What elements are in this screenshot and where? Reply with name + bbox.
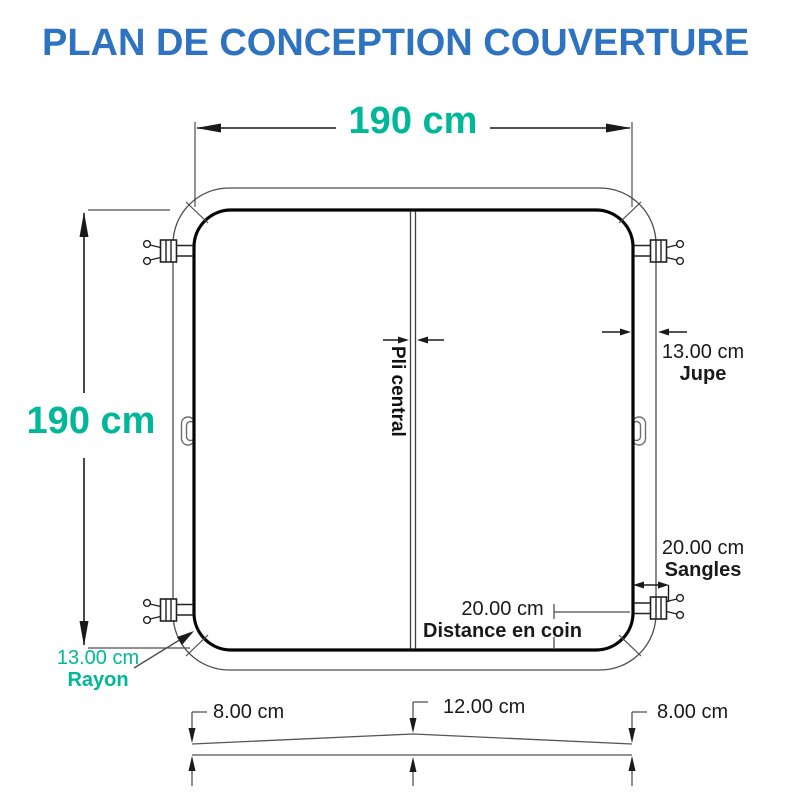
profile-left-label: 8.00 cm	[213, 701, 284, 724]
cover-panel-outline	[194, 210, 633, 650]
rayon-value: 13.00 cm	[38, 647, 158, 669]
corner-distance-value: 20.00 cm	[420, 598, 585, 620]
jupe-value: 13.00 cm	[648, 341, 758, 363]
left-height-label: 190 cm	[20, 400, 162, 443]
buckle-icon	[144, 599, 193, 623]
buckle-icon	[634, 240, 683, 264]
rayon-dimension-label: 13.00 cm Rayon	[38, 647, 158, 691]
jupe-dimension-label: 13.00 cm Jupe	[648, 341, 758, 385]
corner-seam-lines	[186, 202, 641, 656]
cover-design-plan: PLAN DE CONCEPTION COUVERTURE	[0, 0, 800, 800]
buckle-icon	[634, 595, 683, 619]
fold-label: Pli central	[386, 346, 408, 437]
corner-distance-sublabel: Distance en coin	[420, 620, 585, 642]
fold-arrows	[383, 337, 444, 344]
rayon-sublabel: Rayon	[38, 669, 158, 691]
profile-center-label: 12.00 cm	[443, 696, 525, 719]
top-width-label: 190 cm	[338, 100, 488, 143]
sangles-dimension-label: 20.00 cm Sangles	[648, 537, 758, 581]
sangles-value: 20.00 cm	[648, 537, 758, 559]
buckle-icon	[144, 240, 193, 264]
jupe-arrows	[602, 329, 687, 336]
center-fold-line	[411, 212, 416, 649]
corner-distance-label: 20.00 cm Distance en coin	[420, 598, 585, 642]
sangles-label: Sangles	[648, 559, 758, 581]
jupe-label: Jupe	[648, 363, 758, 385]
profile-right-label: 8.00 cm	[657, 701, 728, 724]
